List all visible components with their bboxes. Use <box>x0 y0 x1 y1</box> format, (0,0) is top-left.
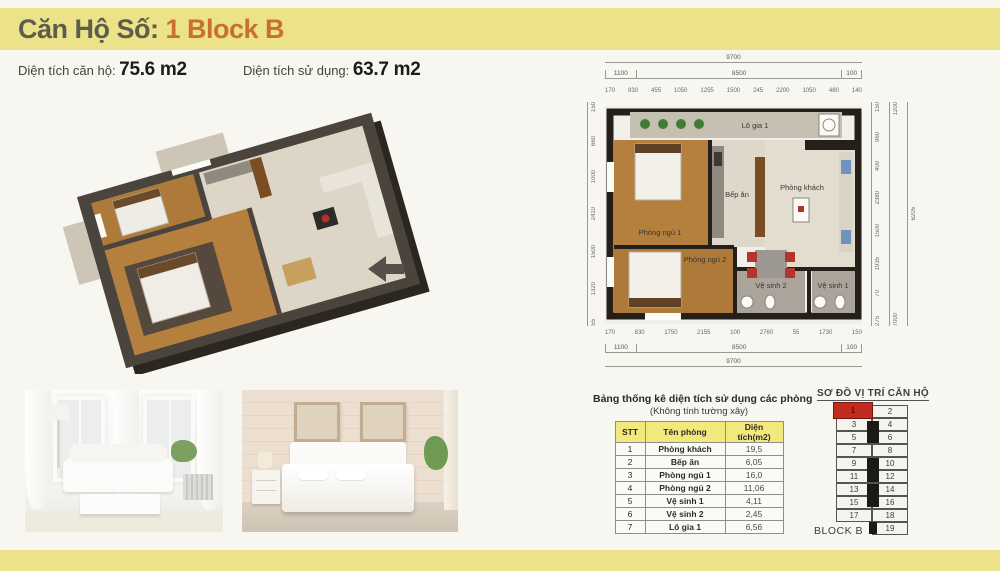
dining-table-shape <box>755 250 787 278</box>
unit-cell-8: 8 <box>872 444 908 457</box>
kitchen-partition-shape <box>755 157 765 237</box>
page-title: Căn Hộ Số: 1 Block B <box>18 8 284 50</box>
block-label: BLOCK B <box>814 525 863 537</box>
stats-col-header: Diện tích(m2) <box>725 422 783 443</box>
table-lamp-shape <box>258 452 272 468</box>
dim-right-side: 15096040023801500193570275 <box>871 102 883 326</box>
washer-icon <box>819 114 839 136</box>
usable-area-value: 63.7 m2 <box>353 59 421 80</box>
location-title: SƠ ĐỒ VỊ TRÍ CĂN HỘ <box>817 388 929 401</box>
bedroom-photo <box>242 390 458 532</box>
table-row: 7Lô gia 16,56 <box>615 521 783 534</box>
table-row: 2Bếp ăn6,05 <box>615 456 783 469</box>
location-section: SƠ ĐỒ VỊ TRÍ CĂN HỘ 13579111315172468101… <box>812 383 992 545</box>
dim-top-total: 9700 <box>605 54 862 63</box>
unit-cell-7: 7 <box>836 444 872 457</box>
dim-top-small: 17083045510501255150024522001050480140 <box>605 88 862 94</box>
table-row: 6Vệ sinh 22,45 <box>615 508 783 521</box>
kitchen-label: Bếp ăn <box>725 190 749 199</box>
bath1-label: Vệ sinh 1 <box>817 281 848 290</box>
dim-top-mid: 11008500100 <box>605 70 862 79</box>
sofa-shape <box>63 458 173 492</box>
unit-area: Diện tích căn hộ: 75.6 m2 <box>18 63 187 78</box>
dim-bottom-total: 9700 <box>605 358 862 367</box>
dim-left-side: 150660100024101500132055 <box>587 102 599 326</box>
plant-shape <box>424 436 448 470</box>
brochure-page: Căn Hộ Số: 1 Block B Diện tích căn hộ: 7… <box>0 0 1000 571</box>
floorplan-3d-render <box>30 82 460 374</box>
living-room-photo <box>25 390 223 532</box>
unit-cell-1: 1 <box>833 402 873 419</box>
unit-area-value: 75.6 m2 <box>119 59 187 80</box>
page-title-prefix: Căn Hộ Số: <box>18 14 166 44</box>
radiator-shape <box>183 474 213 500</box>
table-row: 1Phòng khách19,5 <box>615 443 783 456</box>
stats-title: Bảng thống kê diện tích sử dụng các phòn… <box>593 393 805 405</box>
floor-lamp-shape <box>57 416 60 468</box>
stats-table-body: 1Phòng khách19,52Bếp ăn6,053Phòng ngủ 11… <box>615 443 783 534</box>
toilet-icon <box>765 295 775 309</box>
dining-chair-shape <box>747 252 757 262</box>
dim-right-total: 6205 <box>907 102 919 326</box>
plant-shape <box>171 440 197 462</box>
location-grid: 13579111315172468101214161819 <box>836 405 910 535</box>
bedroom2-label: Phòng ngủ 2 <box>684 255 727 264</box>
table-row: 5Vệ sinh 14,11 <box>615 495 783 508</box>
plant-icon <box>640 119 650 129</box>
window-gap <box>607 162 614 192</box>
stats-table: STTTên phòngDiện tích(m2) 1Phòng khách19… <box>615 421 784 534</box>
bath2-label: Vệ sinh 2 <box>755 281 786 290</box>
bedroom1-label: Phòng ngủ 1 <box>639 228 682 237</box>
floorplan-2d: 9700 11008500100 17083045510501255150024… <box>565 52 965 382</box>
table-row: 3Phòng ngủ 116,0 <box>615 469 783 482</box>
area-stats-line: Diện tích căn hộ: 75.6 m2 Diện tích sử d… <box>18 59 187 81</box>
stats-subtitle: (Không tính tường xây) <box>593 406 805 417</box>
stats-table-headrow: STTTên phòngDiện tích(m2) <box>615 422 783 443</box>
living-label: Phòng khách <box>780 183 824 192</box>
usable-area: Diện tích sử dụng: 63.7 m2 <box>243 59 421 81</box>
stats-col-header: STT <box>615 422 645 443</box>
floorplan-2d-drawing: Lô gia 1 Phòng ngủ 1 Phòng ngủ 2 Bếp ăn … <box>605 102 862 326</box>
sink-icon <box>741 296 753 308</box>
nightstand-shape <box>252 470 280 504</box>
elevator-core-shape <box>867 421 879 443</box>
unit-cell-19: 19 <box>872 522 908 535</box>
balcony-label: Lô gia 1 <box>742 121 769 130</box>
unit-cell-18: 18 <box>872 509 908 522</box>
page-title-unit: 1 Block B <box>166 14 285 44</box>
picture-frame-shape <box>294 402 340 442</box>
coffee-table-shape <box>80 494 160 514</box>
stats-section: Bảng thống kê diện tích sử dụng các phòn… <box>593 393 805 534</box>
stats-col-header: Tên phòng <box>645 422 725 443</box>
dim-bottom-small: 170830175021551002760551730150 <box>605 330 862 336</box>
dim-right-mid: 12007000 <box>889 102 901 326</box>
unit-area-label: Diện tích căn hộ: <box>18 63 119 78</box>
unit-cell-2: 2 <box>872 405 908 418</box>
dim-bottom-mid: 11008500100 <box>605 344 862 353</box>
footer-band <box>0 550 1000 571</box>
table-row: 4Phòng ngủ 211,06 <box>615 482 783 495</box>
usable-area-label: Diện tích sử dụng: <box>243 63 353 78</box>
unit-cell-17: 17 <box>836 509 872 522</box>
